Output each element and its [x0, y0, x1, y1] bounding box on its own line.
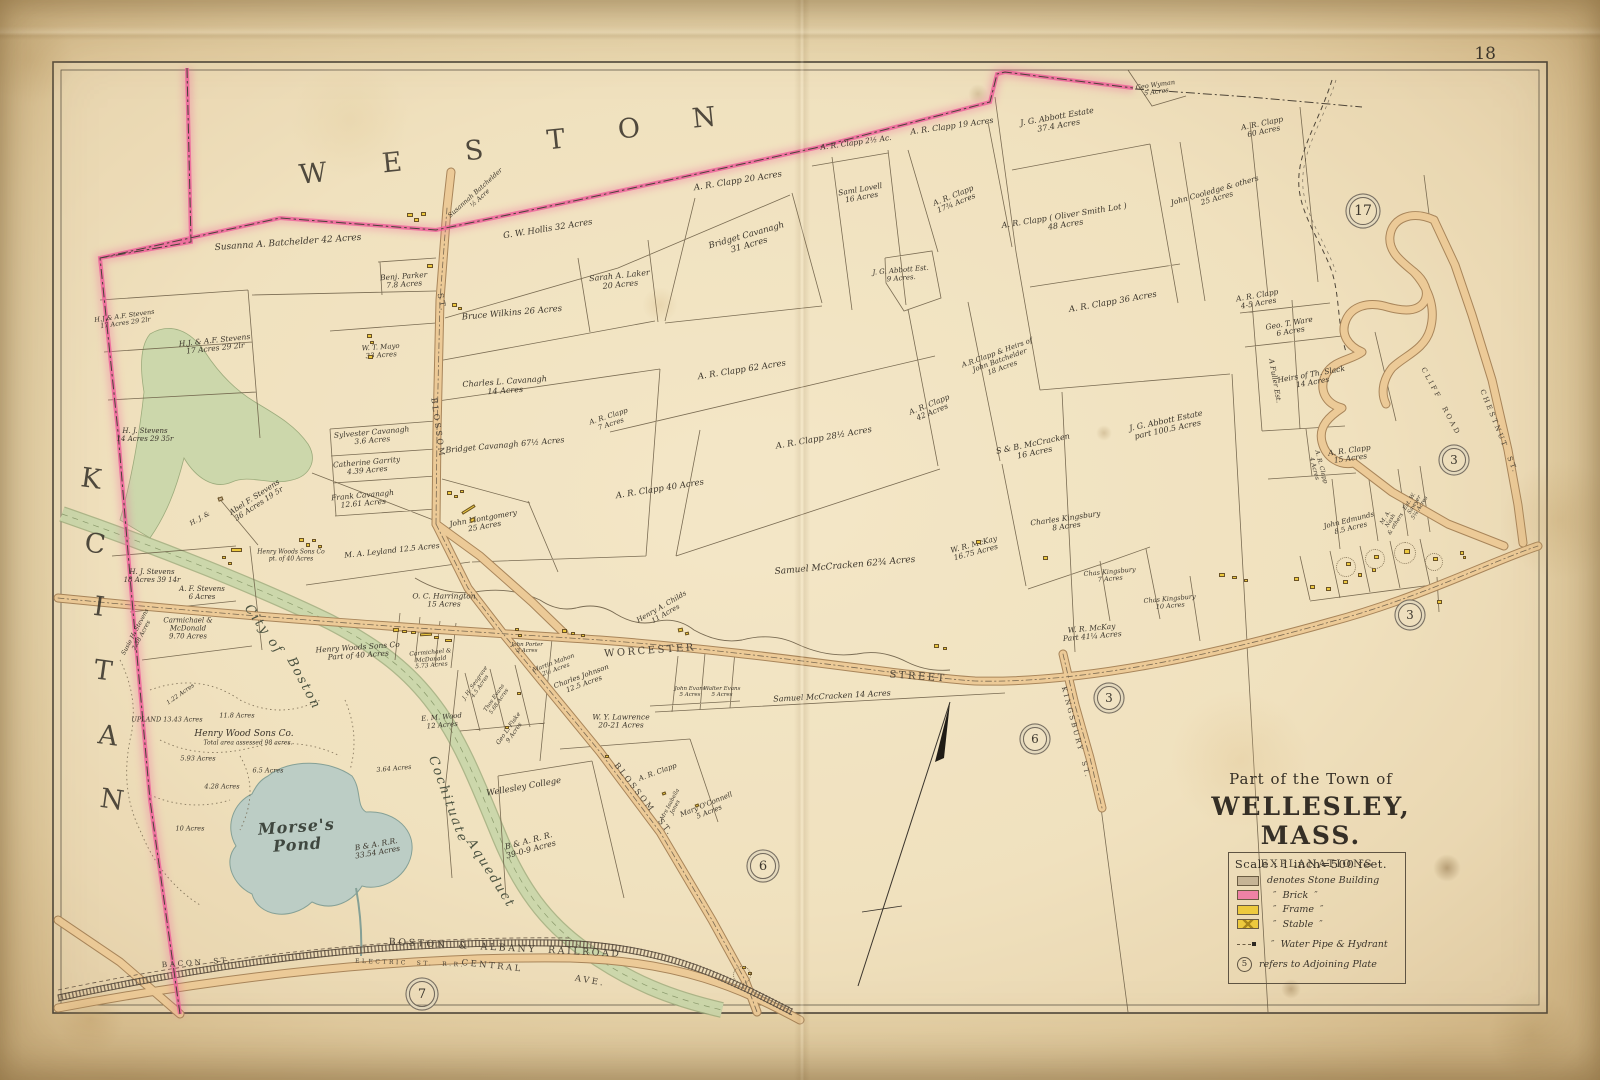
frame-building	[1358, 573, 1362, 577]
frame-building	[445, 639, 452, 642]
frame-building	[458, 307, 462, 310]
frame-building	[1463, 556, 1466, 559]
parcel-label: H. J. Stevens 18 Acres 39 14r	[124, 569, 181, 585]
parcel-label: Henry Woods Sons Co pt. of 40 Acres	[257, 549, 324, 562]
parcel-label: 6.5 Acres	[252, 767, 283, 774]
town-letter-weston: O	[616, 112, 641, 145]
frame-building	[407, 213, 413, 217]
frame-building	[460, 490, 464, 493]
frame-building	[306, 543, 310, 547]
stone-swatch	[1237, 876, 1259, 886]
frame-building	[452, 303, 457, 307]
plate-circle-symbol: 5	[1237, 957, 1252, 972]
frame-building	[1310, 585, 1315, 589]
frame-building	[1219, 573, 1225, 577]
plate-ref-circle: 3	[1097, 686, 1121, 710]
legend-row: ″Frame″	[1237, 904, 1397, 915]
parcel-label: Total area assessed 98 acres.	[203, 741, 292, 748]
frame-building	[562, 629, 567, 633]
dotted-lot-circle	[1394, 542, 1416, 564]
frame-swatch	[1237, 905, 1259, 915]
frame-building	[505, 726, 509, 729]
frame-building	[228, 562, 232, 565]
parcel-label: W. Y. Lawrence 20-21 Acres	[592, 714, 649, 731]
dotted-lot-circle	[733, 966, 751, 984]
legend-row: ″Stable″	[1237, 919, 1397, 930]
frame-building	[393, 628, 399, 632]
frame-building	[454, 495, 458, 498]
frame-building	[414, 218, 419, 222]
frame-building	[943, 647, 947, 650]
parcel-label: Henry Wood Sons Co.	[194, 729, 293, 739]
frame-building	[1326, 587, 1331, 591]
frame-building	[934, 644, 939, 648]
town-letter-natick: C	[83, 527, 108, 561]
legend-item-label: Stable	[1283, 919, 1314, 930]
parcel-label: Carmichael & McDonald 5.73 Acres	[409, 648, 453, 672]
frame-building	[1460, 551, 1464, 555]
parcel-label: John Porter 3 Acres	[511, 642, 543, 654]
frame-building	[370, 341, 374, 344]
legend-item-label: denotes Stone Building	[1267, 875, 1379, 886]
legend-plate-row: 5 refers to Adjoining Plate	[1237, 957, 1397, 972]
frame-building	[605, 755, 609, 758]
brick-swatch	[1237, 890, 1259, 900]
parcel-label: Walter Evans 5 Acres	[704, 686, 741, 698]
parcel-label: 5.93 Acres	[180, 755, 215, 762]
parcel-label: 10 Acres	[176, 825, 205, 832]
frame-building	[515, 628, 519, 631]
frame-building	[402, 630, 407, 633]
frame-building	[1343, 580, 1348, 584]
legend-water-row: ″ Water Pipe & Hydrant	[1237, 939, 1397, 950]
legend-row: ″Brick″	[1237, 890, 1397, 901]
frame-building	[571, 632, 575, 635]
legend-water-label: Water Pipe & Hydrant	[1281, 939, 1388, 950]
legend-row: denotes Stone Building	[1237, 875, 1397, 886]
town-letter-weston: N	[691, 101, 718, 134]
frame-building	[517, 692, 521, 695]
plate-ref-circle: 3	[1398, 603, 1422, 627]
plate-ref-circle: 17	[1349, 197, 1377, 225]
frame-building	[318, 545, 322, 548]
frame-building	[678, 628, 684, 633]
dotted-lot-circle	[1365, 549, 1385, 569]
town-letter-weston: E	[381, 147, 404, 180]
dotted-lot-circle	[1425, 553, 1443, 571]
frame-building	[222, 556, 226, 559]
legend-item-label: Brick	[1283, 890, 1309, 901]
frame-building	[1294, 577, 1299, 581]
frame-building	[368, 355, 373, 359]
frame-building	[1232, 576, 1237, 579]
frame-building	[411, 631, 416, 634]
plate-ref-circle: 6	[750, 853, 776, 879]
title-line-2: WELLESLEY, MASS.	[1180, 792, 1442, 850]
plate-ref-circle: 7	[409, 981, 435, 1007]
town-letter-weston: S	[463, 135, 485, 168]
town-letter-natick: K	[79, 462, 103, 496]
atlas-map-page: WESTONNATICK Susanna A. Batchelder 42 Ac…	[0, 0, 1600, 1080]
frame-building	[1244, 579, 1248, 582]
frame-building	[976, 540, 981, 544]
frame-building	[420, 633, 432, 637]
legend-plate-label: refers to Adjoining Plate	[1259, 959, 1377, 970]
parcel-label: A. F. Stevens 6 Acres	[179, 586, 225, 602]
parcel-label: H. J. Stevens 14 Acres 29 35r	[117, 428, 174, 444]
parcel-label: UPLAND 13.43 Acres	[131, 716, 202, 723]
frame-building	[312, 539, 316, 542]
plate-ref-circle: 6	[1023, 727, 1047, 751]
frame-building	[434, 636, 439, 639]
parcel-label: John Evans 5 Acres	[674, 686, 705, 698]
parcel-label: O. C. Harrington 15 Acres	[412, 593, 475, 610]
pond-label: Morse's Pond	[257, 815, 336, 856]
title-line-1: Part of the Town of	[1180, 770, 1442, 788]
frame-building	[427, 264, 433, 268]
frame-building	[367, 334, 372, 338]
frame-building	[299, 538, 304, 542]
town-letter-weston: T	[545, 124, 566, 157]
frame-building	[1437, 600, 1442, 604]
frame-building	[231, 548, 242, 552]
legend-item-label: Frame	[1283, 904, 1314, 915]
legend-title: EXPLANATIONS	[1237, 858, 1397, 870]
frame-building	[1043, 556, 1048, 560]
legend: EXPLANATIONS denotes Stone Building″Bric…	[1228, 852, 1406, 984]
frame-building	[518, 634, 522, 637]
stable-swatch	[1237, 919, 1259, 929]
parcel-label: Carmichael & McDonald 9.70 Acres	[163, 617, 212, 640]
frame-building	[581, 634, 585, 637]
water-pipe-symbol	[1237, 940, 1257, 948]
parcel-label: Benj. Parker 7.8 Acres	[380, 271, 428, 291]
town-letter-weston: W	[298, 157, 329, 191]
town-letter-natick: N	[98, 783, 126, 817]
frame-building	[421, 212, 426, 216]
town-letter-natick: A	[96, 719, 120, 752]
parcel-label: 4.28 Acres	[204, 783, 239, 790]
dotted-lot-circle	[1336, 557, 1356, 577]
frame-building	[447, 491, 452, 495]
plate-ref-circle: 3	[1442, 448, 1466, 472]
page-number: 18	[1474, 44, 1496, 64]
parcel-label: 11.8 Acres	[219, 712, 254, 719]
